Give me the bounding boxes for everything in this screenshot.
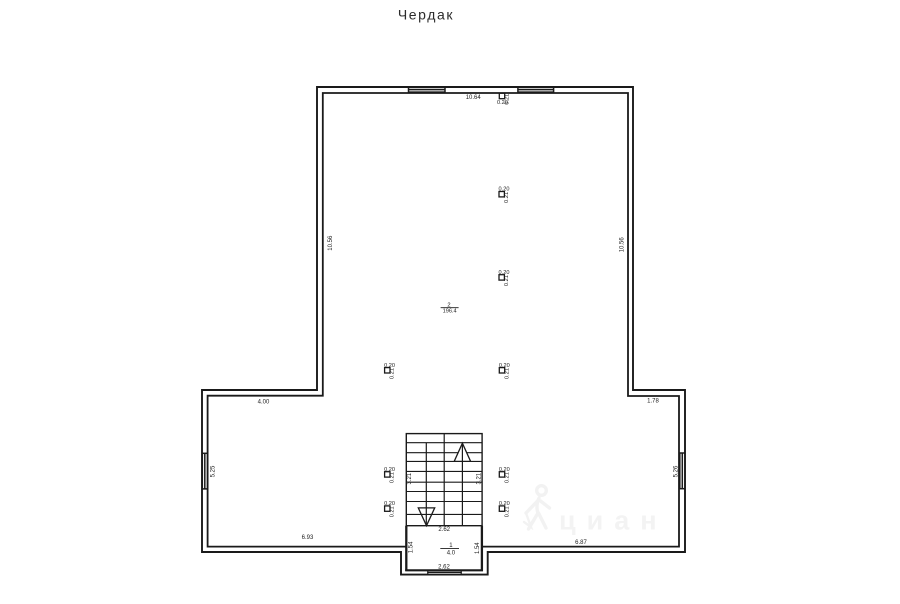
svg-text:Чердак: Чердак — [398, 7, 454, 23]
svg-text:4.00: 4.00 — [258, 399, 270, 405]
svg-text:2.62: 2.62 — [438, 527, 450, 533]
svg-text:10.64: 10.64 — [466, 95, 482, 101]
svg-text:1.78: 1.78 — [647, 399, 659, 405]
svg-text:3.21: 3.21 — [407, 472, 413, 484]
svg-text:циан: циан — [559, 506, 668, 536]
svg-text:1.54: 1.54 — [475, 542, 481, 554]
svg-text:0.20: 0.20 — [499, 187, 510, 193]
svg-text:0.20: 0.20 — [499, 363, 510, 369]
svg-text:0.21: 0.21 — [504, 472, 510, 483]
svg-text:0.21: 0.21 — [504, 94, 510, 105]
svg-text:0.21: 0.21 — [390, 368, 396, 379]
svg-text:6.87: 6.87 — [575, 540, 587, 546]
svg-text:10.56: 10.56 — [328, 235, 334, 251]
svg-text:0.20: 0.20 — [384, 467, 395, 473]
svg-text:0.21: 0.21 — [504, 506, 510, 517]
svg-text:0.21: 0.21 — [390, 472, 396, 483]
svg-text:196.4: 196.4 — [443, 309, 457, 315]
svg-text:4.0: 4.0 — [447, 551, 456, 557]
svg-text:6.93: 6.93 — [302, 535, 314, 541]
svg-text:0.20: 0.20 — [384, 501, 395, 507]
svg-text:0.20: 0.20 — [499, 501, 510, 507]
svg-text:5.25: 5.25 — [211, 465, 217, 477]
svg-text:0.20: 0.20 — [499, 467, 510, 473]
svg-text:0.21: 0.21 — [504, 192, 510, 203]
svg-text:0.20: 0.20 — [384, 363, 395, 369]
svg-text:5.26: 5.26 — [674, 465, 680, 477]
svg-text:0.21: 0.21 — [504, 275, 510, 286]
svg-text:0.20: 0.20 — [499, 270, 510, 276]
svg-text:1.54: 1.54 — [409, 541, 415, 553]
svg-text:3.21: 3.21 — [476, 472, 482, 484]
svg-text:2.62: 2.62 — [438, 565, 450, 571]
svg-text:0.21: 0.21 — [504, 368, 510, 379]
svg-text:10.56: 10.56 — [620, 237, 626, 253]
svg-text:0.21: 0.21 — [390, 506, 396, 517]
